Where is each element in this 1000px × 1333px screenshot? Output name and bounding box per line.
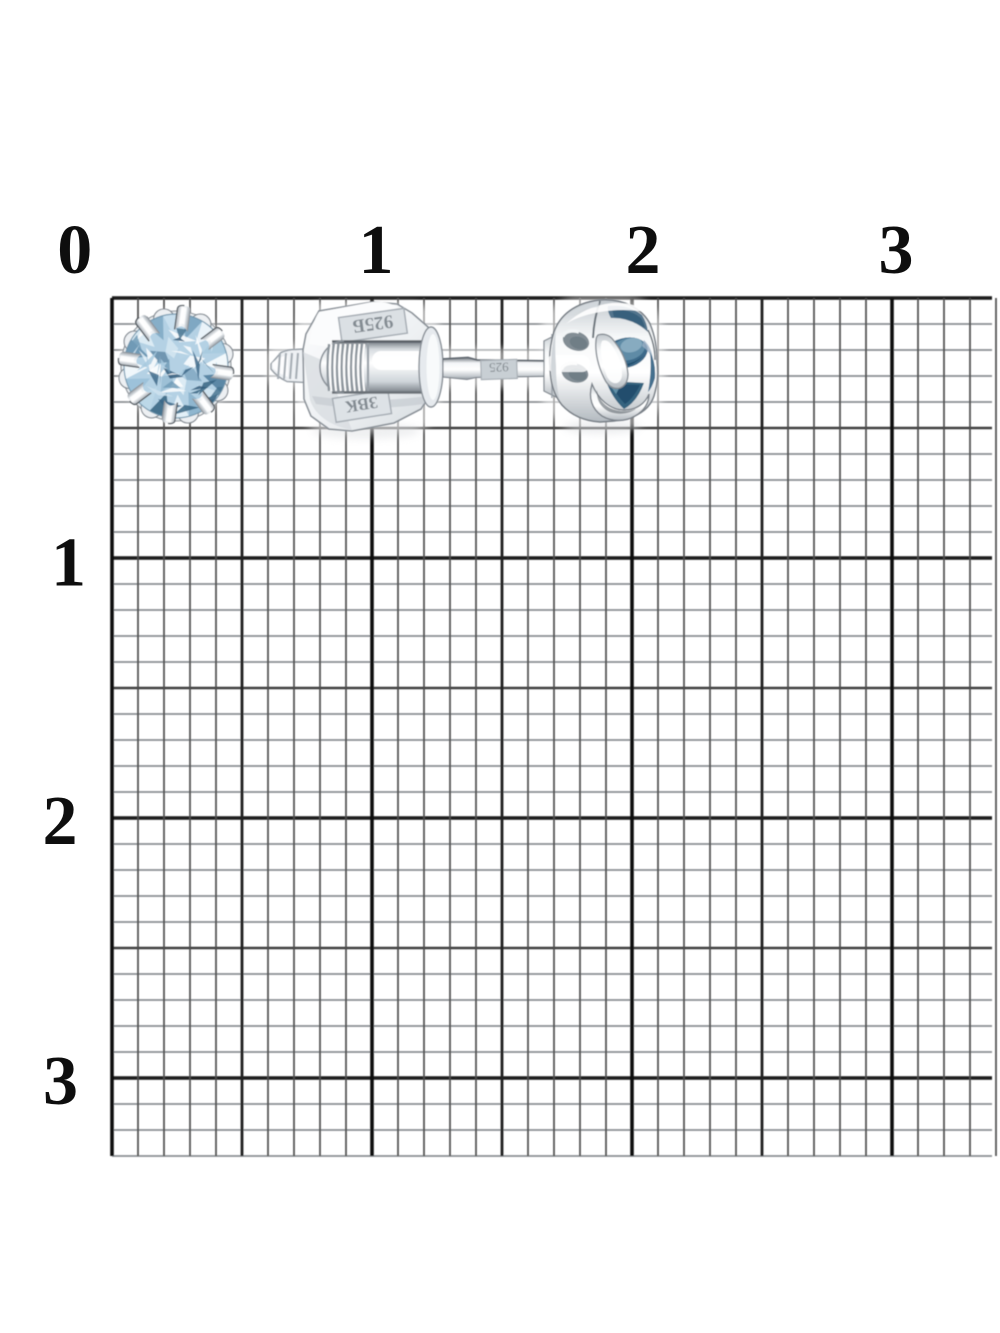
svg-text:3: 3: [43, 1043, 78, 1120]
svg-text:925: 925: [489, 360, 509, 376]
svg-text:0: 0: [57, 212, 92, 289]
svg-text:1: 1: [359, 212, 394, 289]
svg-text:2: 2: [43, 783, 78, 860]
svg-text:3: 3: [879, 212, 914, 289]
svg-text:2: 2: [626, 212, 661, 289]
svg-text:1: 1: [51, 525, 86, 602]
